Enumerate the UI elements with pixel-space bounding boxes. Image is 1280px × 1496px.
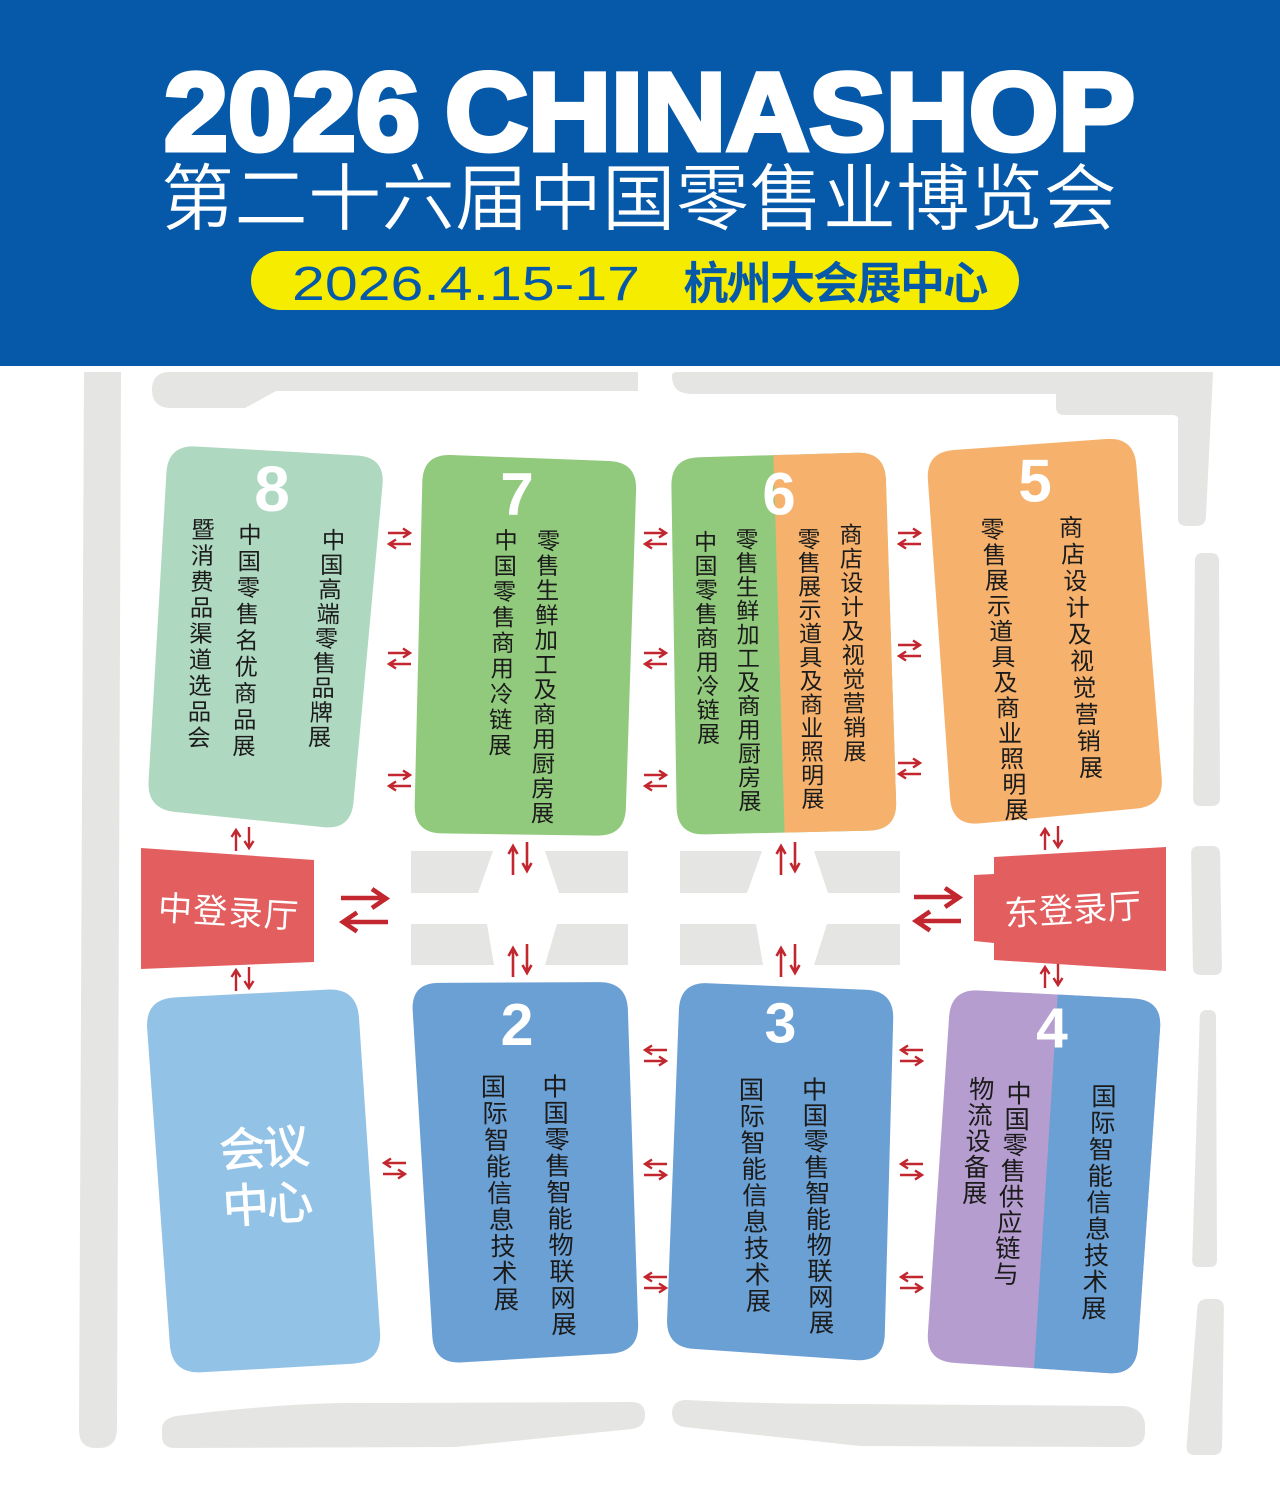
svg-text:8: 8 xyxy=(254,453,290,525)
svg-text:2026: 2026 xyxy=(164,51,420,174)
svg-text:7: 7 xyxy=(500,461,533,528)
svg-text:6: 6 xyxy=(762,461,795,528)
svg-text:5: 5 xyxy=(1018,448,1051,515)
svg-text:2: 2 xyxy=(501,992,534,1058)
svg-text:4: 4 xyxy=(1036,997,1068,1061)
svg-text:CHINASHOP: CHINASHOP xyxy=(445,51,1135,174)
svg-text:2026.4.15-17: 2026.4.15-17 xyxy=(292,258,640,311)
svg-text:3: 3 xyxy=(765,992,797,1056)
